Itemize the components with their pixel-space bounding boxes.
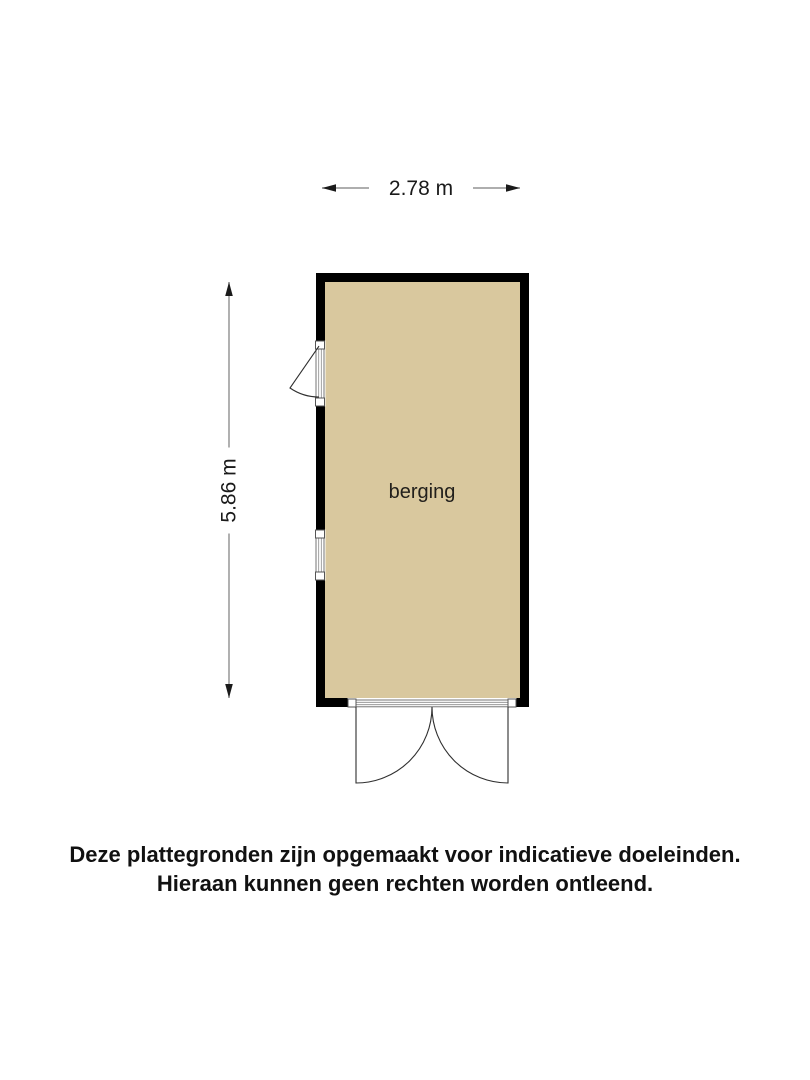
disclaimer-text: Deze plattegronden zijn opgemaakt voor i… (0, 840, 810, 898)
left-door-jamb-bottom (316, 398, 325, 406)
left-window-sill-top (316, 530, 325, 538)
room-label: berging (332, 479, 512, 505)
bottom-door-panel (356, 700, 508, 707)
height-dimension-label: 5.86 m (216, 447, 243, 533)
left-door-panel (316, 349, 324, 398)
width-dimension-arrowhead-left (322, 184, 336, 192)
left-window-sill-bottom (316, 572, 325, 580)
width-dimension-label: 2.78 m (369, 175, 473, 202)
height-dimension-arrowhead-bottom (225, 684, 233, 698)
bottom-door-jamb-right (508, 699, 516, 707)
height-dimension-arrowhead-top (225, 282, 233, 296)
bottom-door-swing-arc-left (356, 707, 432, 783)
left-window-glazing (316, 538, 324, 572)
bottom-door-swing-arc-right (432, 707, 508, 783)
disclaimer-line-2: Hieraan kunnen geen rechten worden ontle… (0, 869, 810, 898)
width-dimension-arrowhead-right (506, 184, 520, 192)
floor-plan-page: 2.78 m 5.86 m berging Deze plattegronden… (0, 0, 810, 1080)
left-door-jamb-top (316, 341, 325, 349)
disclaimer-line-1: Deze plattegronden zijn opgemaakt voor i… (0, 840, 810, 869)
floor-plan-drawing (0, 0, 810, 1080)
bottom-door-jamb-left (348, 699, 356, 707)
